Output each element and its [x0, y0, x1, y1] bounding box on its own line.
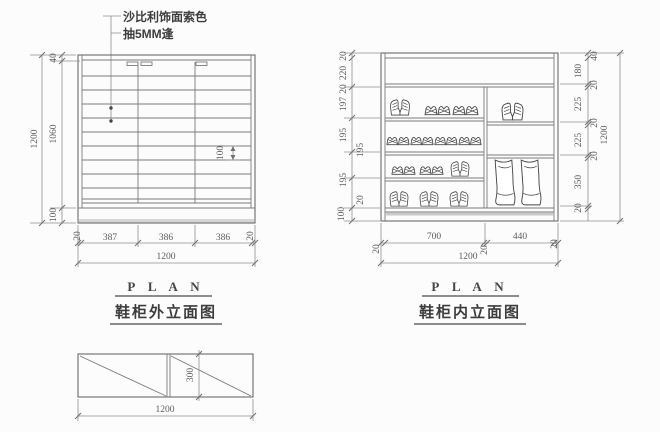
interior-title-en: P L A N [431, 279, 508, 294]
dim-label: 225 [574, 133, 584, 148]
cad-canvas: 沙比利饰面索色 抽5MM逢 1200 40 1060 100 100 20 38… [0, 0, 660, 432]
dim-label: 20 [246, 231, 256, 241]
dim-label: 1200 [459, 252, 478, 262]
dim-label: 1200 [30, 129, 40, 148]
annotation-gap: 抽5MM逢 [123, 26, 174, 41]
drawing-sheet: 沙比利饰面索色 抽5MM逢 1200 40 1060 100 100 20 38… [0, 0, 660, 432]
dim-label: 20 [372, 244, 382, 254]
dim-label: 20 [356, 195, 366, 205]
dim-label: 440 [513, 232, 528, 242]
dim-label: 180 [574, 64, 584, 79]
dim-label: 20 [574, 203, 584, 213]
dim-label: 40 [49, 53, 59, 63]
shoe-pair-icon [435, 137, 457, 144]
plan-view: 300 1200 [75, 350, 256, 421]
dim-label: 20 [480, 245, 490, 255]
door-slat-lines [82, 76, 251, 199]
dim-label: 20 [73, 231, 83, 241]
plan-divider [167, 354, 170, 397]
plinth-shadow [79, 219, 254, 223]
shoe-pair-icon [392, 167, 415, 174]
shoe-pair-icon [420, 167, 443, 174]
leader-line [103, 16, 121, 121]
shoe-pair-icon [387, 137, 409, 144]
shoes [387, 100, 541, 206]
door-pull [196, 62, 207, 66]
dim-label: 220 [339, 66, 349, 81]
plan-outline [78, 354, 253, 397]
leader-dot [109, 119, 112, 122]
exterior-elevation: 沙比利饰面索色 抽5MM逢 1200 40 1060 100 100 20 38… [30, 9, 258, 324]
shoe-pair-icon [459, 137, 481, 144]
dim-label: 197 [339, 97, 349, 112]
door-pull [141, 62, 152, 66]
dim-lines [560, 53, 624, 221]
dim-label: 350 [574, 175, 584, 190]
dim-label: 195 [339, 128, 349, 143]
shoe-pair-icon [411, 137, 433, 144]
dim-label: 100 [216, 146, 226, 161]
door-pull [127, 62, 138, 66]
dim-label: 1060 [49, 124, 59, 143]
dim-label: 387 [103, 233, 118, 243]
boot-icon [495, 160, 515, 205]
dim-label: 20 [339, 51, 349, 61]
dim-label: 20 [590, 80, 600, 90]
dim-label: 195 [356, 143, 366, 158]
leader-dot [109, 106, 112, 109]
exterior-title-en: P L A N [127, 279, 204, 294]
annotation-finish: 沙比利饰面索色 [123, 9, 207, 24]
shoe-pair-icon [451, 162, 469, 176]
dim-label: 1200 [600, 125, 610, 144]
boot-icon [521, 160, 541, 205]
dim-label: 20 [550, 239, 560, 249]
plinth-shadow [386, 212, 553, 216]
dim-label: 225 [574, 97, 584, 112]
shoe-pair-icon [450, 192, 468, 206]
shoe-pair-icon [390, 192, 408, 206]
dim-label: 100 [337, 207, 347, 222]
dim-label: 300 [186, 368, 196, 383]
cabinet-outline [78, 55, 255, 223]
dim-label: 20 [590, 118, 600, 128]
dim-label: 386 [216, 233, 231, 243]
dim-label: 386 [159, 233, 174, 243]
shoe-pair-icon [502, 103, 523, 120]
dim-label: 100 [49, 208, 59, 223]
shoe-pair-icon [425, 107, 450, 115]
exterior-title-zh: 鞋柜外立面图 [115, 303, 217, 321]
dim-label: 1200 [156, 405, 175, 415]
shoe-pair-icon [453, 107, 478, 115]
interior-title-zh: 鞋柜内立面图 [419, 303, 521, 321]
door-divider-lines [138, 62, 195, 203]
shoe-pair-icon [391, 100, 410, 115]
interior-elevation: 20 220 20 197 195 195 195 20 100 40 180 … [337, 50, 624, 324]
cabinet-frame-lines [78, 55, 255, 208]
plan-diagonals [80, 356, 251, 396]
dim-label: 40 [590, 51, 600, 61]
dim-label: 20 [339, 84, 349, 94]
right-bay-shelves [487, 122, 554, 158]
dim-label: 195 [339, 173, 349, 188]
shoe-pair-icon [420, 192, 438, 206]
dim-label: 700 [427, 232, 442, 242]
dim-label: 1200 [157, 252, 176, 262]
dim-label: 20 [590, 151, 600, 161]
